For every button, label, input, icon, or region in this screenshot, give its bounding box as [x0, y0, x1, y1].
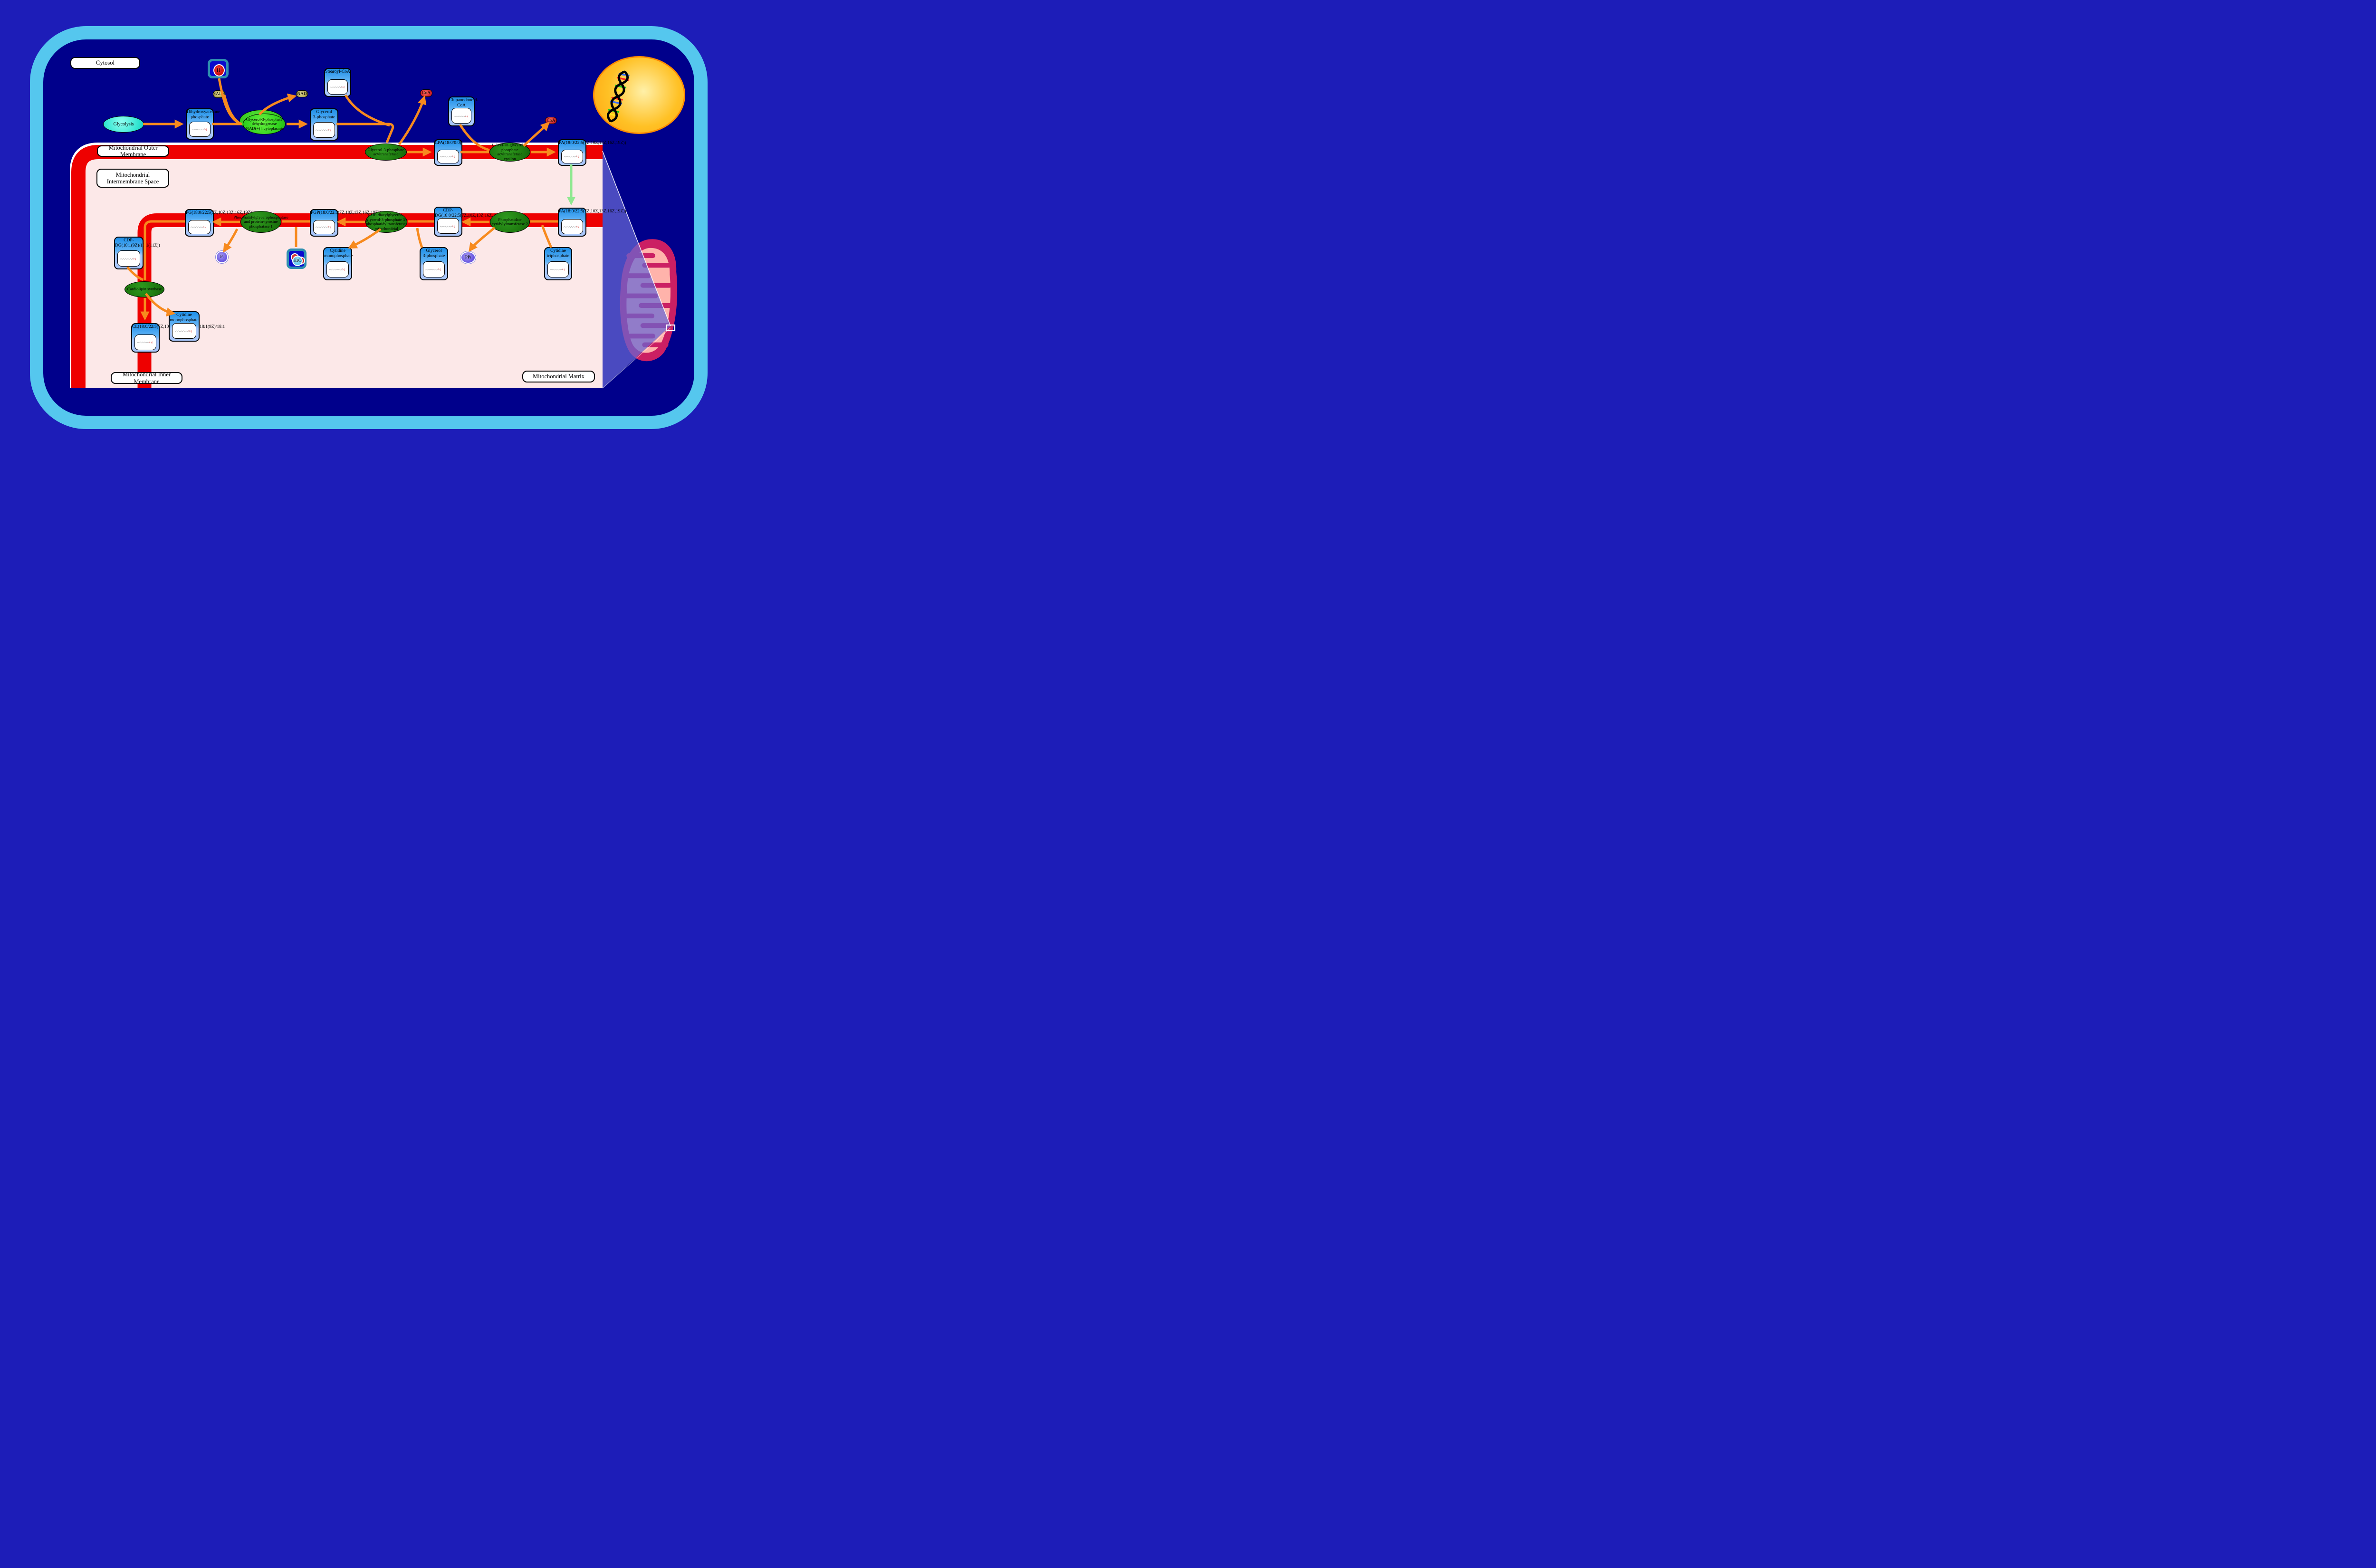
pathway-diagram-canvas: Cytosol Mitochondrial Outer Membrane Mit…	[0, 0, 745, 455]
enzyme-gpat[interactable]: Glycerol-3-phosphate acyltransferase	[365, 143, 407, 161]
metabolite-label: Dihydroxyacetonephosphate	[187, 110, 213, 120]
small-molecule-ppi[interactable]: PPi	[460, 251, 476, 264]
compartment-label-matrix: Mitochondrial Matrix	[522, 371, 595, 382]
metabolite-pgp[interactable]: PGP(18:0/22:5(7Z,10Z,13Z,16Z,19Z))	[310, 209, 338, 237]
small-molecule-h2o[interactable]: H2O	[287, 249, 307, 269]
structure-panel	[117, 250, 140, 267]
molecule-structure	[315, 223, 333, 231]
molecule-structure	[329, 83, 346, 91]
molecule-structure	[119, 254, 138, 263]
structure-panel	[327, 79, 348, 95]
metabolite-stearoyl[interactable]: Stearoyl-CoA	[324, 68, 351, 97]
molecule-structure	[190, 223, 208, 231]
molecule-structure	[425, 265, 443, 274]
metabolite-label: Cytidinetriphosphate	[545, 249, 571, 258]
small-molecule-nad[interactable]: NAD	[296, 90, 308, 97]
metabolite-label: PGP(18:0/22:5(7Z,10Z,13Z,16Z,19Z))	[311, 210, 337, 216]
metabolite-dhap[interactable]: Dihydroxyacetonephosphate	[186, 108, 214, 140]
compartment-label-outer-membrane: Mitochondrial Outer Membrane	[97, 145, 169, 157]
structure-panel	[437, 150, 459, 163]
metabolite-label: Cytidinemonophosphate	[324, 249, 351, 258]
molecule-structure	[563, 222, 581, 231]
molecule-structure	[136, 338, 154, 346]
structure-panel	[451, 108, 472, 124]
metabolite-label: Stearoyl-CoA	[325, 69, 350, 75]
metabolite-lpa[interactable]: LPA(18:0/0:0)	[434, 139, 462, 166]
enzyme-agpat[interactable]: 1-Acyl-sn-glycerol-3-phosphate acyltrans…	[489, 143, 530, 162]
metabolite-cl[interactable]: CL(18:0/22:5(7Z,10Z,13Z,16Z,19Z)/18:1(9Z…	[131, 323, 160, 353]
molecule-structure	[453, 112, 470, 121]
metabolite-cmp_bot[interactable]: Cytidinemonophosphate	[169, 311, 200, 342]
small-molecule-coa1[interactable]: CoA	[420, 89, 432, 97]
structure-panel	[189, 122, 211, 137]
metabolite-clupanodonoyl[interactable]: Clupanodonoyl-CoA	[448, 96, 475, 126]
enzyme-gpd1[interactable]: Glycerol-3-phosphate dehydrogenase [NAD(…	[243, 114, 286, 134]
metabolite-ctp[interactable]: Cytidinetriphosphate	[544, 247, 572, 280]
water-molecule-icon: H2O	[292, 256, 303, 266]
structure-panel	[313, 122, 335, 138]
metabolite-label: CDP-DG(18:0/22:5(7Z,10Z,13Z,16Z,19Z))	[435, 208, 461, 218]
small-molecule-coa2[interactable]: CoA	[545, 117, 557, 124]
molecule-structure	[439, 222, 457, 231]
metabolite-label: Glycerol3-phosphate	[421, 249, 447, 258]
metabolite-label: CL(18:0/22:5(7Z,10Z,13Z,16Z,19Z)/18:1(9Z…	[132, 325, 159, 330]
molecule-structure	[328, 265, 346, 274]
structure-panel	[313, 220, 335, 234]
enzyme-ptpmt1[interactable]: Phosphatidylglycerophosphatase and prote…	[240, 211, 281, 233]
molecule-structure	[549, 265, 567, 274]
structure-panel	[188, 220, 211, 234]
molecule-structure	[174, 326, 194, 335]
metabolite-label: PA(18:0/22:5(7Z,10Z,13Z,16Z,19Z))	[559, 209, 585, 214]
metabolite-pa_im[interactable]: PA(18:0/22:5(7Z,10Z,13Z,16Z,19Z))	[558, 208, 586, 237]
metabolite-cdp_dg_im[interactable]: CDP-DG(18:0/22:5(7Z,10Z,13Z,16Z,19Z))	[434, 207, 462, 237]
structure-panel	[561, 219, 583, 234]
structure-panel	[561, 150, 583, 163]
metabolite-label: PG(18:0/22:5(7Z,10Z,13Z,16Z,19Z))	[186, 210, 213, 216]
small-molecule-nadh[interactable]: NADH	[213, 90, 225, 98]
metabolite-cdp_dg_18_1[interactable]: CDP-DG(18:1(9Z)/18:1(11Z))	[114, 237, 144, 269]
molecule-structure	[563, 153, 581, 160]
metabolite-label: CDP-DG(18:1(9Z)/18:1(11Z))	[115, 238, 143, 248]
metabolite-label: PA(18:0/22:5(7Z,10Z,13Z,16Z,19Z))	[559, 141, 585, 146]
molecule-structure	[315, 125, 333, 134]
small-molecule-h_plus[interactable]: H+	[208, 59, 229, 78]
metabolite-label: LPA(18:0/0:0)	[435, 141, 461, 146]
structure-panel	[547, 261, 569, 277]
metabolite-pa_om[interactable]: PA(18:0/22:5(7Z,10Z,13Z,16Z,19Z))	[558, 139, 586, 166]
metabolite-label: Cytidinemonophosphate	[170, 313, 199, 323]
metabolite-g3p_cyt[interactable]: Glycerol3-phosphate	[310, 108, 338, 141]
structure-panel	[437, 218, 459, 234]
structure-panel	[326, 261, 349, 277]
small-molecule-pi[interactable]: Pi	[216, 251, 228, 263]
metabolite-pg[interactable]: PG(18:0/22:5(7Z,10Z,13Z,16Z,19Z))	[185, 209, 214, 237]
molecule-structure	[439, 153, 457, 160]
structure-panel	[172, 323, 196, 339]
metabolite-g3p_mx[interactable]: Glycerol3-phosphate	[420, 247, 448, 280]
structure-panel	[134, 335, 156, 350]
metabolite-label: Glycerol3-phosphate	[311, 110, 337, 120]
enzyme-pgs1[interactable]: CDP-diacylglycerol--glycerol-3-phosphate…	[365, 211, 407, 233]
structure-panel	[423, 261, 445, 277]
metabolite-label: Clupanodonoyl-CoA	[449, 98, 474, 108]
compartment-label-inner-membrane: Mitochondrial Inner Membrane	[111, 372, 182, 384]
enzyme-crls1[interactable]: Cardiolipin synthase	[125, 281, 164, 297]
metabolite-cmp_mid[interactable]: Cytidinemonophosphate	[323, 247, 352, 280]
enzyme-cds2[interactable]: Phosphatidate cytidylyltransferase 2	[490, 211, 530, 233]
pathway-node-glycolysis[interactable]: Glycolysis	[103, 116, 144, 133]
compartment-label-intermembrane-space: Mitochondrial Intermembrane Space	[96, 169, 169, 188]
compartment-label-cytosol: Cytosol	[70, 57, 140, 69]
proton-icon: H+	[213, 64, 225, 76]
molecule-structure	[191, 125, 209, 134]
